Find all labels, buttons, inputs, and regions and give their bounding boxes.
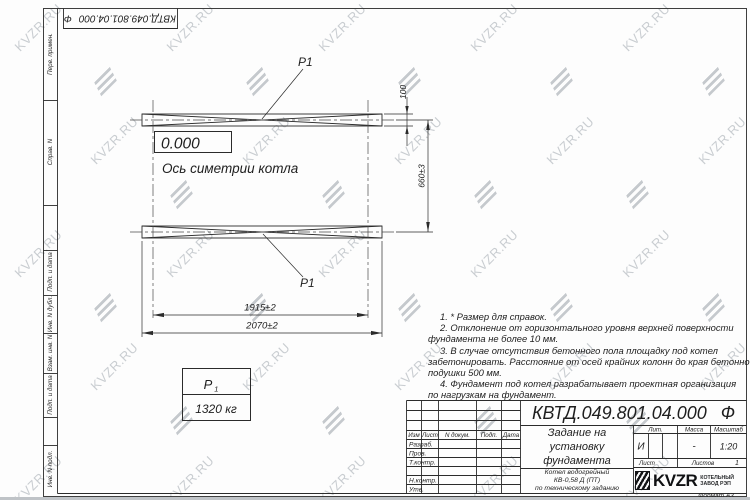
title-line: Задание на bbox=[521, 426, 633, 440]
dimension-lines bbox=[142, 69, 433, 337]
rev-col-data: Дата bbox=[502, 432, 520, 439]
doc-number-code: КВТД.049.801.04.000 bbox=[532, 403, 707, 424]
lit-mass-scale: Лит. Масса Масштаб И - 1:20 Лист Листов … bbox=[637, 426, 743, 467]
sidebar-label: Взам. инв. N bbox=[47, 334, 54, 371]
corner-stamp-number: КВТД.049.801.04.000Ф bbox=[64, 13, 176, 24]
title-line: установку bbox=[521, 440, 633, 454]
row-razrab: Разраб. bbox=[409, 440, 433, 448]
note-line: 3. В случае отсутствия бетонного пола пл… bbox=[428, 345, 746, 356]
document-title: Задание на установку фундамента bbox=[521, 426, 633, 468]
sidebar-labels: Перв. примен. Справ. N Подп. и дата Инв.… bbox=[46, 33, 54, 487]
sidebar-label: Перв. примен. bbox=[47, 33, 54, 75]
note-line: забетонировать. Расстояние от осей крайн… bbox=[428, 356, 746, 367]
load-label-top: Р1 bbox=[298, 55, 313, 69]
dim-spacing: 660±3 bbox=[417, 164, 427, 188]
weight-symbol-sub: 1 bbox=[214, 385, 218, 394]
weight-symbol-main: Р bbox=[204, 377, 213, 392]
revision-header: Изм Лист N докум. Подп. Дата bbox=[408, 432, 519, 439]
dim-inner: 1915±2 bbox=[244, 303, 276, 314]
title-line: фундамента bbox=[521, 454, 633, 468]
dim-outer: 2070±2 bbox=[245, 321, 278, 332]
technical-notes: 1. * Размер для справок. 2. Отклонение о… bbox=[428, 311, 746, 401]
rev-col-docnum: N докум. bbox=[445, 432, 470, 439]
foundation-beams bbox=[142, 114, 382, 238]
note-line: 2. Отклонение от горизонтального уровня … bbox=[428, 322, 746, 333]
subtitle-line: Котел водогрейный bbox=[521, 469, 633, 477]
scale-label: Масштаб bbox=[714, 426, 743, 433]
lit-label: Лит. bbox=[647, 426, 663, 433]
sheets-value: 1 bbox=[735, 460, 739, 467]
kvzr-logo-icon bbox=[635, 471, 650, 490]
row-tkontr: Т.контр. bbox=[409, 459, 436, 466]
row-prov: Пров. bbox=[409, 450, 427, 457]
note-line: фундамента не более 10 мм. bbox=[428, 333, 746, 344]
rev-col-izm: Изм bbox=[408, 432, 420, 439]
linework: Перв. примен. Справ. N Подп. и дата Инв.… bbox=[0, 0, 750, 500]
sheets-label: Листов bbox=[691, 460, 715, 467]
sidebar-label: Инв. N подл. bbox=[46, 451, 54, 488]
dim-height: 100 bbox=[398, 85, 408, 99]
note-line: по нагрузкам на фундамент. bbox=[428, 389, 746, 400]
sidebar-label: Справ. N bbox=[47, 138, 54, 165]
company-tagline-line: ЗАВОД РЭП bbox=[700, 481, 734, 487]
load-label-bottom: Р1 bbox=[300, 276, 315, 290]
doc-number-suffix: Ф bbox=[721, 403, 735, 424]
scale-value: 1:20 bbox=[720, 442, 738, 452]
corner-stamp-code: КВТД.049.801.04.000 bbox=[78, 13, 176, 24]
mass-value: - bbox=[692, 442, 696, 453]
rev-col-list: Лист bbox=[421, 432, 438, 439]
company-name: KVZR bbox=[653, 471, 697, 491]
sidebar-label: Подп. и дата bbox=[46, 375, 54, 415]
boiler-axis-label: Ось симетрии котла bbox=[162, 161, 299, 176]
subtitle-line: по техническому заданию bbox=[521, 485, 633, 493]
sidebar-label: Инв. N дубл. bbox=[46, 296, 54, 332]
company-logo: KVZR КОТЕЛЬНЫЙ ЗАВОД РЭП bbox=[635, 468, 745, 493]
rev-col-podp: Подп. bbox=[481, 432, 497, 439]
note-line: 1. * Размер для справок. bbox=[428, 311, 746, 322]
sheet-label: Лист bbox=[638, 460, 655, 467]
weight-value: 1320 кг bbox=[195, 402, 237, 416]
doc-number: КВТД.049.801.04.000 Ф bbox=[521, 403, 746, 424]
row-utv: Утв. bbox=[408, 486, 424, 493]
mass-label: Масса bbox=[685, 426, 704, 433]
corner-stamp-suffix: Ф bbox=[64, 13, 72, 24]
company-tagline: КОТЕЛЬНЫЙ ЗАВОД РЭП bbox=[700, 475, 734, 487]
document-subtitle: Котел водогрейный КВ-0,58 Д (ПТ) по техн… bbox=[521, 469, 633, 494]
elevation-mark: 0.000 bbox=[161, 136, 200, 153]
drawing-sheet: KVZR.RUKVZR.RUKVZR.RUKVZR.RUKVZR.RUKVZR.… bbox=[0, 0, 750, 500]
note-line: подушки 500 мм. bbox=[428, 367, 746, 378]
sidebar-label: Подп. и дата bbox=[46, 252, 54, 292]
center-axes bbox=[130, 100, 394, 318]
row-nkontr: Н.контр. bbox=[409, 477, 437, 484]
note-line: 4. Фундамент под котел разрабатывает про… bbox=[428, 378, 746, 389]
weight-symbol: Р1 bbox=[204, 377, 219, 394]
lit-value: И bbox=[637, 442, 645, 453]
